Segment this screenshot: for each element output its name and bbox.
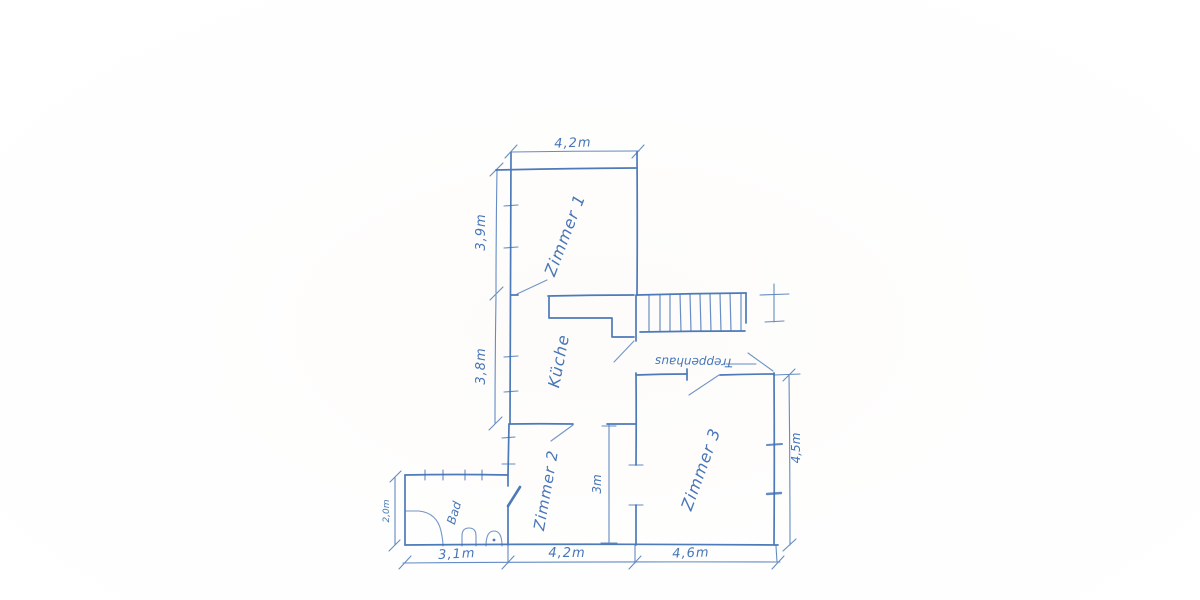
dim-bottom-zimmer3-width: 4,6m	[672, 545, 710, 561]
floor-plan-sketch: Zimmer 1 Küche Treppenhaus Zimmer 2 Zimm…	[0, 0, 1200, 600]
room-label-treppenhaus: Treppenhaus	[655, 354, 733, 369]
room-label-zimmer2: Zimmer 2	[530, 448, 562, 532]
room-label-zimmer3: Zimmer 3	[677, 425, 725, 514]
dim-right-height: 4,5m	[789, 433, 803, 464]
dim-bottom-zimmer2-width: 4,2m	[548, 546, 585, 561]
door-kueche-zimmer2	[551, 425, 573, 441]
floor-plan-drawing: Zimmer 1 Küche Treppenhaus Zimmer 2 Zimm…	[0, 0, 1200, 600]
dim-kueche-height: 3,8m	[474, 347, 489, 384]
room-label-kueche: Küche	[544, 333, 573, 390]
bathtub	[406, 511, 443, 546]
dim-zimmer2-inner-height: 3m	[590, 474, 604, 493]
door-zimmer1-kueche	[517, 280, 547, 294]
door-bad	[508, 487, 520, 506]
room-label-zimmer1: Zimmer 1	[540, 191, 589, 279]
dim-bottom-bad-width: 3,1m	[438, 546, 476, 563]
dim-top-width: 4,2m	[554, 135, 592, 151]
door-treppenhaus-zimmer3	[689, 375, 719, 395]
room-label-bad: Bad	[444, 499, 464, 526]
dim-bad-height: 2,0m	[382, 499, 392, 522]
door-kueche-treppenhaus	[614, 341, 634, 362]
stairs	[637, 293, 746, 332]
toilet	[462, 528, 476, 546]
treppenhaus-leader-line	[748, 353, 773, 371]
sink-drain	[493, 539, 496, 542]
dim-zimmer1-height: 3,9m	[474, 213, 489, 250]
